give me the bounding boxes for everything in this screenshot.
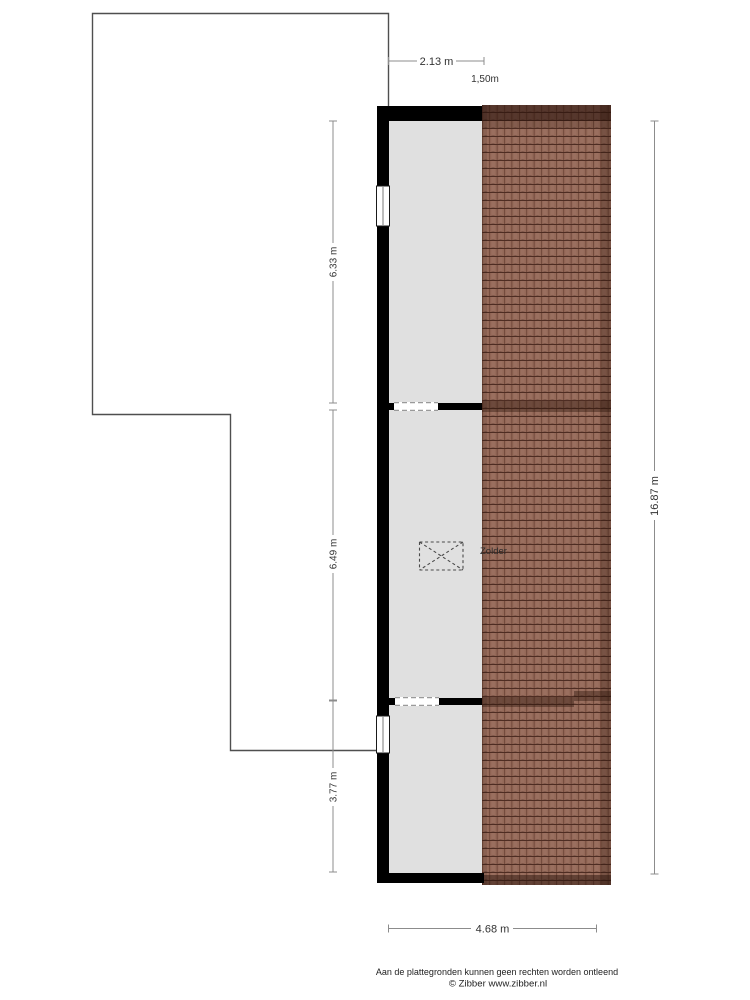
svg-text:Zolder: Zolder <box>480 546 507 557</box>
svg-text:4.68 m: 4.68 m <box>476 924 510 936</box>
svg-text:2.13 m: 2.13 m <box>420 56 454 68</box>
svg-text:Aan de plattegronden kunnen ge: Aan de plattegronden kunnen geen rechten… <box>376 967 618 977</box>
svg-text:6.33 m: 6.33 m <box>329 247 340 278</box>
svg-text:16.87 m: 16.87 m <box>649 476 661 516</box>
svg-text:© Zibber www.zibber.nl: © Zibber www.zibber.nl <box>449 979 547 990</box>
svg-text:1,50m: 1,50m <box>471 74 499 85</box>
svg-text:6.49 m: 6.49 m <box>329 539 340 570</box>
svg-text:3.77 m: 3.77 m <box>329 772 340 803</box>
